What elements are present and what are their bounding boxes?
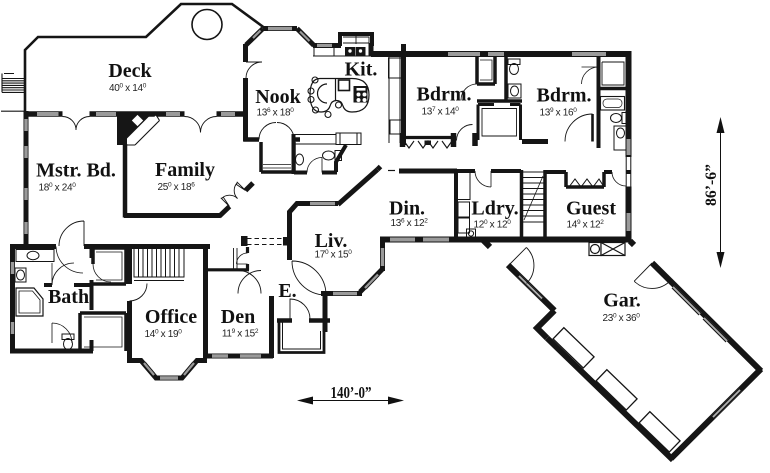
svg-text:Bdrm.: Bdrm.: [417, 84, 472, 106]
svg-text:Gar.: Gar.: [603, 290, 641, 312]
svg-text:400 x 140: 400 x 140: [109, 83, 147, 95]
svg-text:120 x 120: 120 x 120: [474, 219, 512, 231]
svg-text:Mstr. Bd.: Mstr. Bd.: [36, 160, 116, 182]
svg-text:Ldry.: Ldry.: [471, 198, 518, 220]
svg-text:Nook: Nook: [255, 86, 301, 108]
svg-text:137 x 140: 137 x 140: [422, 106, 460, 118]
svg-text:Bath: Bath: [48, 286, 89, 308]
svg-text:E.: E.: [278, 280, 296, 302]
svg-text:Family: Family: [155, 159, 215, 181]
svg-text:149 x 122: 149 x 122: [567, 219, 605, 231]
svg-text:Din.: Din.: [389, 198, 425, 220]
svg-text:170 x 150: 170 x 150: [315, 249, 353, 261]
svg-text:139 x 160: 139 x 160: [540, 107, 578, 119]
svg-text:140’-0”: 140’-0”: [331, 383, 372, 402]
svg-text:140 x 190: 140 x 190: [145, 329, 183, 341]
svg-text:Office: Office: [145, 306, 197, 328]
svg-text:136 x 180: 136 x 180: [257, 107, 295, 119]
svg-text:86’-6”: 86’-6”: [703, 164, 720, 206]
svg-text:230 x 360: 230 x 360: [603, 313, 641, 325]
svg-text:119 x 152: 119 x 152: [222, 328, 259, 340]
svg-text:Bdrm.: Bdrm.: [537, 85, 592, 107]
svg-text:Guest: Guest: [566, 198, 616, 220]
svg-text:180 x 240: 180 x 240: [39, 182, 77, 194]
svg-text:136 x 122: 136 x 122: [391, 218, 429, 230]
svg-text:Kit.: Kit.: [345, 59, 378, 81]
svg-text:Den: Den: [221, 306, 255, 328]
svg-text:Deck: Deck: [108, 60, 152, 82]
svg-text:250 x 186: 250 x 186: [158, 182, 196, 194]
